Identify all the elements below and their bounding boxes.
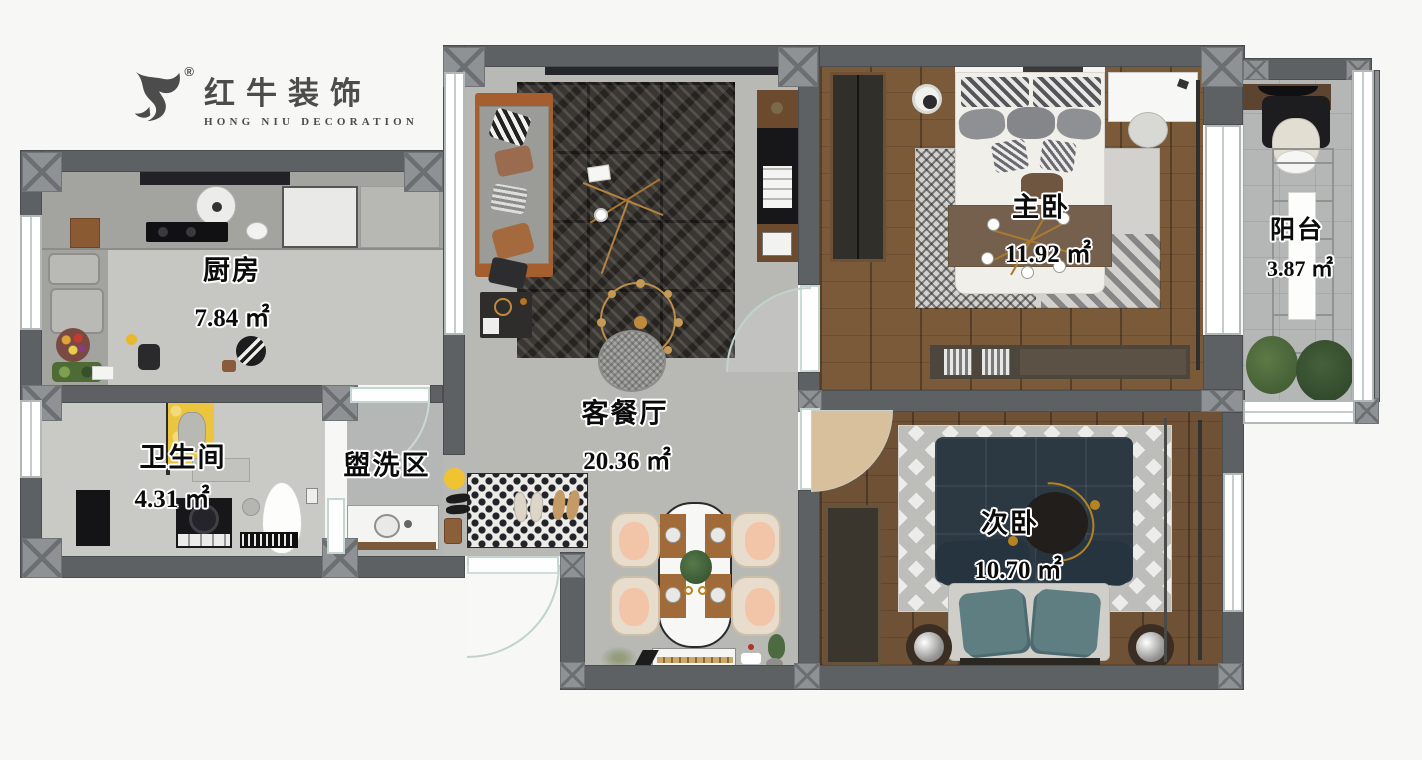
gold-ring-decor <box>684 586 693 595</box>
chandelier-bulb <box>987 218 1000 231</box>
wall-living-right-lower <box>798 490 820 665</box>
side-table-paper <box>483 318 499 334</box>
wall-kitchen-bath-sep <box>20 385 348 403</box>
curtain-rod-second <box>1198 420 1202 660</box>
side-table-gold-ring <box>494 298 512 316</box>
sideboard-decor <box>657 657 733 663</box>
tv-cabinet-plant <box>771 102 783 114</box>
sink-basin-1 <box>48 253 100 285</box>
bathroom-name: 卫生间 <box>140 443 227 474</box>
bathroom-label: 卫生间 <box>140 436 227 475</box>
balcony-plant-1 <box>1246 336 1298 394</box>
wall-kitchen-top <box>20 150 443 172</box>
range-hood-center <box>212 202 222 212</box>
kitchen-appliance-block <box>282 186 358 248</box>
ceiling-lamp-center <box>923 95 937 109</box>
vanity-faucet <box>404 520 412 528</box>
window-second-right <box>1223 473 1243 612</box>
plate <box>665 527 681 543</box>
ceiling-lamp-master <box>912 84 942 114</box>
coffee-cup <box>594 208 608 222</box>
corner-pad <box>794 663 820 689</box>
branch-decor <box>570 150 680 250</box>
checker-pillow <box>961 77 1029 107</box>
dining-chair <box>731 512 781 568</box>
checker-pillow <box>1033 77 1101 107</box>
sink-basin-2 <box>50 288 104 334</box>
bathroom-area: 4.31 ㎡ <box>134 486 209 513</box>
master-area-label: 11.92 ㎡ <box>1005 234 1091 270</box>
gray-pillow <box>1007 107 1055 139</box>
placemat <box>660 514 686 558</box>
balcony-name: 阳台 <box>1270 215 1324 244</box>
mini-table <box>740 652 762 665</box>
yellow-lamp-kitchen <box>126 334 137 345</box>
red-flower <box>748 644 754 650</box>
bench-base <box>960 658 1100 665</box>
teal-pillow <box>958 588 1028 656</box>
bench-cushion-striped <box>944 349 972 375</box>
wood-toy <box>222 360 236 372</box>
brand-logo: ® 红牛装饰 HONG NIU DECORATION <box>128 68 418 128</box>
balcony-area-label: 3.87 ㎡ <box>1267 251 1333 283</box>
corner-pad <box>1201 47 1243 87</box>
wall-bottom-main <box>560 665 1244 690</box>
corner-pad <box>560 662 585 688</box>
vanity-counter <box>347 505 439 550</box>
placemat <box>705 514 731 558</box>
bull-logo-icon: ® <box>128 68 190 126</box>
tv-cabinet-art <box>762 232 792 256</box>
wall-top-main <box>443 45 1245 67</box>
master-bench <box>930 345 1190 379</box>
living-name: 客餐厅 <box>582 399 669 430</box>
kitchen-label: 厨房 <box>203 249 261 288</box>
corner-pad <box>1201 390 1243 412</box>
side-table <box>480 292 532 338</box>
curtain-rod-master <box>1196 80 1200 370</box>
wood-basket <box>444 518 462 544</box>
plate <box>710 527 726 543</box>
tv-cabinet-books <box>763 166 792 208</box>
bathroom-area-label: 4.31 ㎡ <box>134 479 209 515</box>
lamp-center <box>634 316 647 329</box>
corner-pad <box>404 152 443 192</box>
gold-bead <box>1090 500 1100 510</box>
wall-sep-stub <box>430 385 443 403</box>
cutting-board <box>70 218 100 248</box>
washer-drawers <box>178 534 230 546</box>
chair-pillow <box>619 522 649 560</box>
gold-ring-decor <box>698 586 707 595</box>
master-name: 主卧 <box>1012 193 1070 224</box>
curtain-rod-second-inner <box>1164 418 1167 662</box>
second-name: 次卧 <box>981 509 1039 540</box>
kitchen-name: 厨房 <box>203 256 261 287</box>
chair-pillow <box>745 588 775 626</box>
wardrobe-divider <box>857 75 859 259</box>
balcony-area: 3.87 ㎡ <box>1267 256 1333 281</box>
teal-pillow <box>1032 588 1101 655</box>
desk-chair <box>1128 112 1168 148</box>
second-bench <box>948 583 1110 661</box>
range-hood-duct <box>140 172 290 185</box>
green-plant-small <box>768 634 785 659</box>
wall-master-balcony-lower <box>1203 335 1243 390</box>
bedside-lamp <box>914 632 944 662</box>
corner-pad <box>22 152 62 192</box>
lamp-bulb <box>636 279 645 288</box>
dining-chair <box>610 512 660 568</box>
bath-stool <box>242 498 260 516</box>
chandelier-bulb <box>981 252 994 265</box>
bedside-table <box>1128 624 1174 670</box>
white-book <box>587 165 611 183</box>
corner-pad <box>778 47 818 87</box>
bench-wood-part <box>1020 349 1186 375</box>
small-checker-pillow <box>1039 139 1077 173</box>
window-balcony-bottom <box>1243 400 1355 424</box>
master-wardrobe <box>830 72 886 262</box>
kettle <box>138 344 160 370</box>
wall-master-second-sep <box>798 390 1245 412</box>
plate <box>665 587 681 603</box>
paper-holder <box>306 488 318 504</box>
living-area-label: 20.36 ㎡ <box>583 441 671 477</box>
small-checker-pillow <box>991 138 1030 173</box>
living-label: 客餐厅 <box>582 392 669 431</box>
kitchen-area-label: 7.84 ㎡ <box>194 298 269 334</box>
second-wardrobe <box>825 505 881 665</box>
dining-chair <box>731 576 781 636</box>
corner-pad <box>22 538 62 578</box>
yellow-ceiling-lamp <box>444 468 465 489</box>
wall-balcony-outer-line <box>1374 70 1380 402</box>
burner-1 <box>158 227 168 237</box>
corner-pad <box>1243 60 1269 80</box>
lamp-bulb <box>664 346 672 354</box>
lamp-bulb <box>664 290 672 298</box>
brand-name-cn: 红牛装饰 <box>204 68 418 113</box>
placemat <box>705 574 731 618</box>
bedside-lamp <box>1136 632 1166 662</box>
plate <box>710 587 726 603</box>
window-bathroom-left <box>20 400 42 478</box>
food-plate <box>246 222 268 240</box>
corner-pad <box>1218 663 1242 689</box>
washing-name: 盥洗区 <box>344 451 431 482</box>
placemat <box>660 574 686 618</box>
washing-label: 盥洗区 <box>344 444 431 483</box>
bench-cushion-striped <box>982 349 1010 375</box>
window-kitchen-left <box>20 215 42 330</box>
chair-pillow <box>745 522 775 560</box>
lamp-bulb <box>674 318 683 327</box>
white-towel <box>92 366 114 380</box>
master-label: 主卧 <box>1012 186 1070 225</box>
registered-mark: ® <box>184 64 194 79</box>
sofa-pillow-striped <box>490 183 528 215</box>
second-label: 次卧 <box>981 502 1039 541</box>
chair-pillow <box>619 588 649 626</box>
brand-name-en: HONG NIU DECORATION <box>204 116 418 128</box>
second-area: 10.70 ㎡ <box>974 557 1062 584</box>
table-centerpiece-plant <box>680 550 712 584</box>
second-area-label: 10.70 ㎡ <box>974 550 1062 586</box>
window-master-balcony <box>1205 125 1241 335</box>
balcony-label: 阳台 <box>1270 210 1324 246</box>
window-balcony-right <box>1352 70 1374 402</box>
lamp-bulb <box>597 318 606 327</box>
gray-pillow <box>958 107 1006 141</box>
kitchen-cabinet-right <box>360 186 440 248</box>
window-living-left <box>444 72 465 335</box>
valance-strip <box>545 67 798 75</box>
vanity-basin <box>374 514 400 538</box>
side-table-orange-dot <box>520 298 527 305</box>
wall-left-bottom <box>20 556 465 578</box>
burner-2 <box>186 227 196 237</box>
bedside-table <box>906 624 952 670</box>
striped-plate <box>236 336 266 366</box>
gray-pillow <box>1056 107 1103 141</box>
living-area: 20.36 ㎡ <box>583 448 671 475</box>
fruit-bowl <box>56 328 90 362</box>
balcony-plant-2 <box>1296 340 1354 402</box>
lamp-bulb <box>608 290 616 298</box>
corner-pad <box>560 554 585 578</box>
vanity-wood-front <box>350 542 436 550</box>
floorplan-canvas: 厨房 7.84 ㎡ 卫生间 4.31 ㎡ 盥洗区 客餐厅 20.36 ㎡ 主卧 … <box>0 0 1422 760</box>
shower-column <box>76 490 110 546</box>
kitchen-area: 7.84 ㎡ <box>194 305 269 332</box>
bathroom-door-leaf <box>327 498 345 554</box>
drain-rack <box>240 532 298 548</box>
dining-chair <box>610 576 660 636</box>
tv-cabinet <box>757 90 798 262</box>
round-chair <box>598 330 666 392</box>
master-area: 11.92 ㎡ <box>1005 241 1091 268</box>
